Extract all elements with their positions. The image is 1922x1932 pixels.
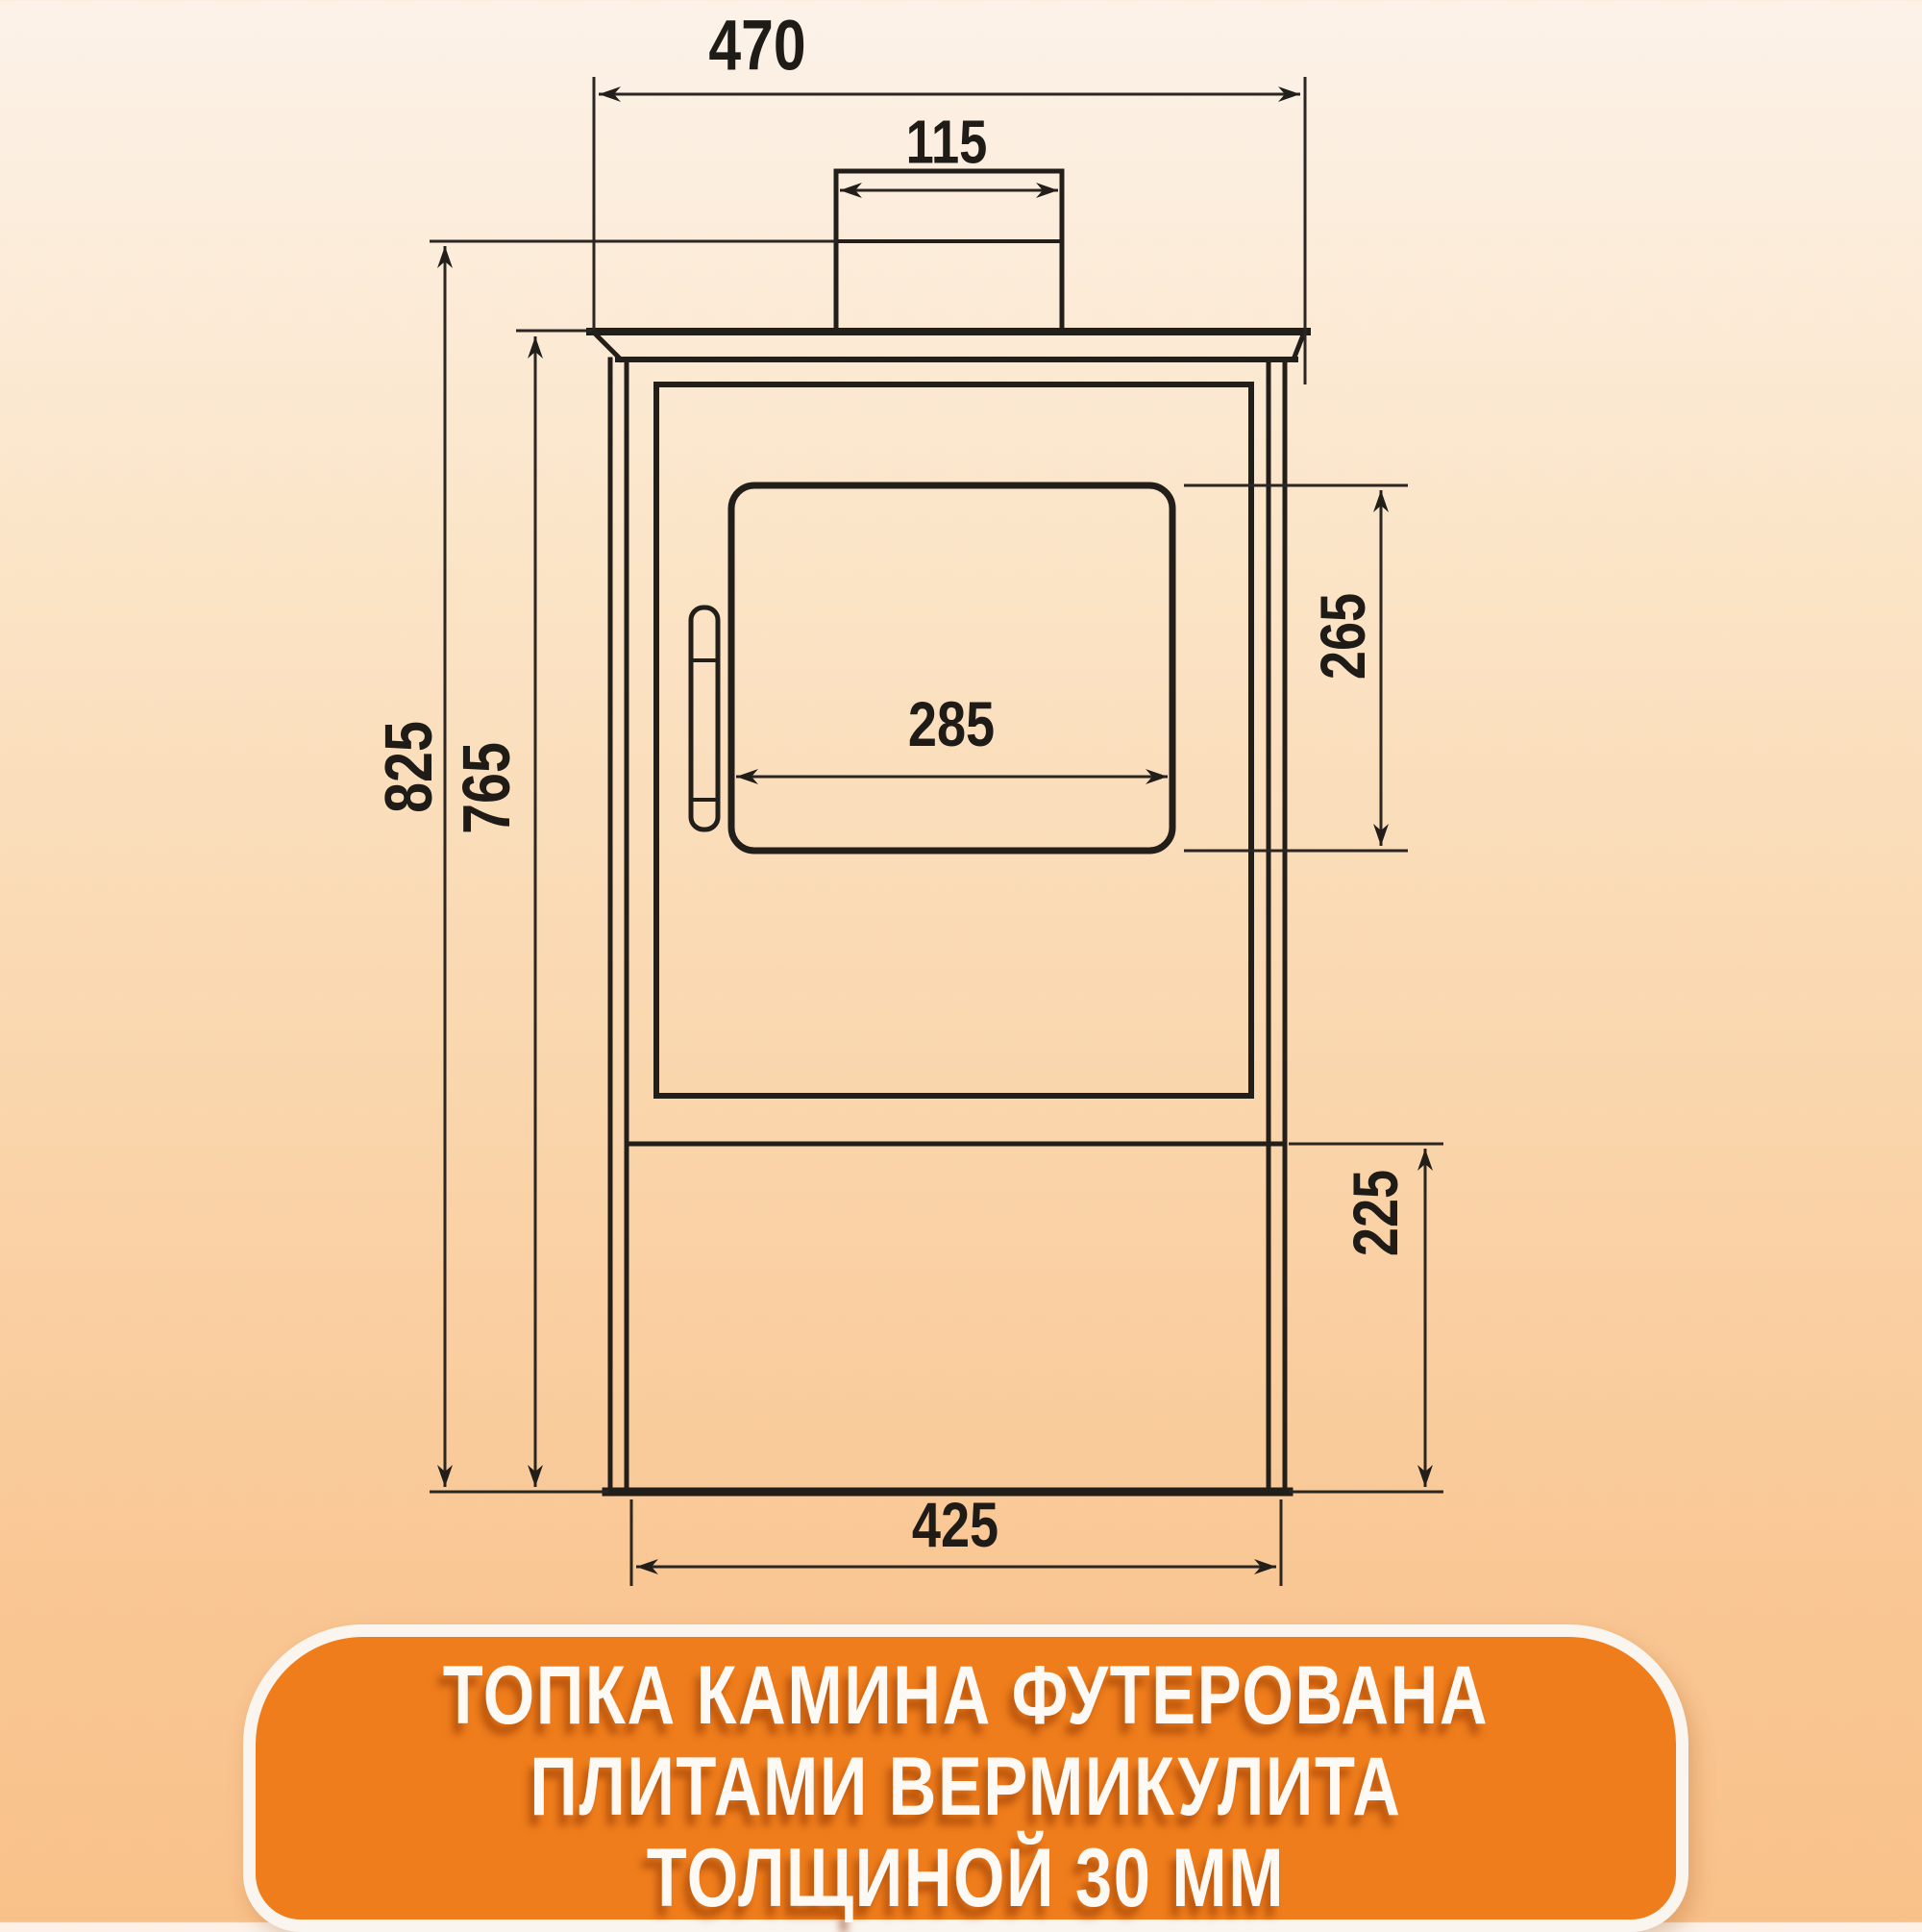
door-handle — [691, 607, 718, 830]
banner-text-line-3: ТОЛЩИНОЙ 30 ММ — [398, 1833, 1534, 1924]
banner-text-line-1: ТОПКА КАМИНА ФУТЕРОВАНА — [398, 1650, 1534, 1742]
dimension-265: 265 — [1307, 490, 1381, 846]
dimension-765: 765 — [449, 336, 535, 1487]
stove-body — [606, 359, 1289, 1492]
door-glass — [731, 485, 1172, 851]
banner-text-line-2: ПЛИТАМИ ВЕРМИКУЛИТА — [398, 1742, 1534, 1833]
dimension-425: 425 — [636, 1489, 1276, 1567]
dimension-825-label: 825 — [371, 721, 447, 813]
dimension-115-label: 115 — [906, 108, 988, 176]
info-banner: ТОПКА КАМИНА ФУТЕРОВАНА ПЛИТАМИ ВЕРМИКУЛ… — [243, 1624, 1688, 1932]
dimension-225: 225 — [1340, 1149, 1425, 1487]
dimension-470: 470 — [599, 7, 1300, 94]
dimension-425-label: 425 — [912, 1489, 998, 1560]
top-plate — [590, 332, 1307, 359]
dimension-285-label: 285 — [908, 688, 995, 759]
dimension-765-label: 765 — [449, 742, 525, 834]
dimension-265-label: 265 — [1307, 593, 1378, 680]
dimension-470-label: 470 — [708, 7, 805, 86]
chimney-pipe — [836, 171, 1062, 333]
extension-lines — [430, 77, 1443, 1586]
dimension-115: 115 — [840, 108, 1058, 190]
page: 470 115 825 765 265 285 225 425 — [0, 0, 1922, 1922]
dimension-285: 285 — [736, 688, 1168, 777]
dimension-225-label: 225 — [1340, 1170, 1411, 1256]
dimension-825: 825 — [371, 246, 447, 1487]
